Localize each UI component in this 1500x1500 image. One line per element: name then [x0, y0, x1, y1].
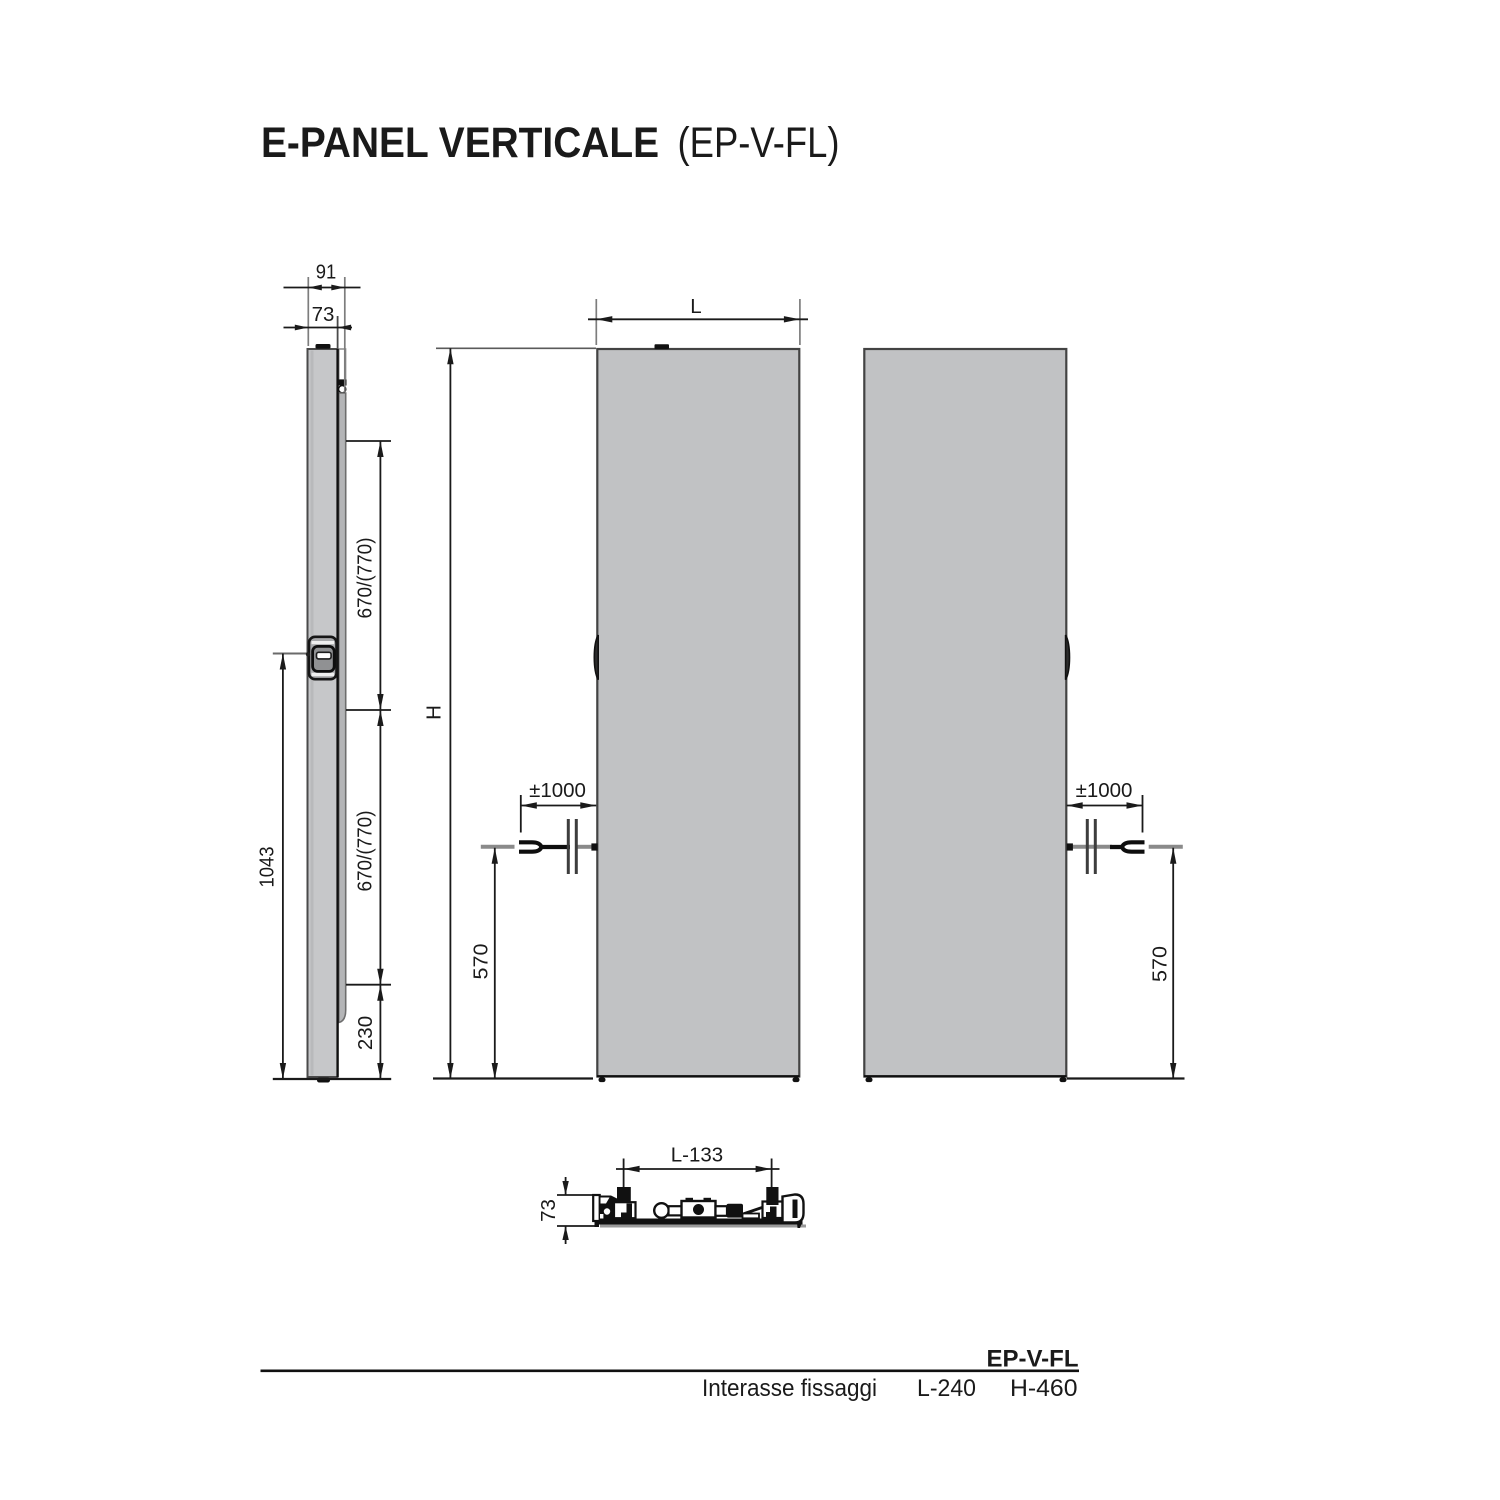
svg-text:570: 570	[1149, 946, 1172, 982]
svg-text:±1000: ±1000	[1076, 779, 1133, 802]
svg-text:(EP-V-FL): (EP-V-FL)	[678, 120, 840, 167]
svg-text:73: 73	[537, 1199, 560, 1222]
svg-text:H: H	[423, 705, 446, 720]
svg-text:L-240: L-240	[917, 1375, 976, 1402]
svg-text:±1000: ±1000	[529, 779, 586, 802]
svg-text:670/(770): 670/(770)	[354, 538, 377, 619]
svg-text:L-133: L-133	[671, 1144, 723, 1167]
svg-text:570: 570	[470, 944, 493, 980]
svg-text:Interasse fissaggi: Interasse fissaggi	[702, 1375, 877, 1402]
svg-text:L: L	[690, 295, 701, 318]
svg-text:230: 230	[354, 1016, 377, 1050]
svg-text:E-PANEL VERTICALE: E-PANEL VERTICALE	[261, 120, 659, 167]
svg-text:91: 91	[316, 261, 337, 284]
svg-text:H-460: H-460	[1010, 1375, 1078, 1402]
svg-text:73: 73	[312, 303, 335, 326]
svg-text:1043: 1043	[256, 847, 279, 888]
svg-text:670/(770): 670/(770)	[354, 811, 377, 892]
svg-text:EP-V-FL: EP-V-FL	[986, 1346, 1078, 1373]
